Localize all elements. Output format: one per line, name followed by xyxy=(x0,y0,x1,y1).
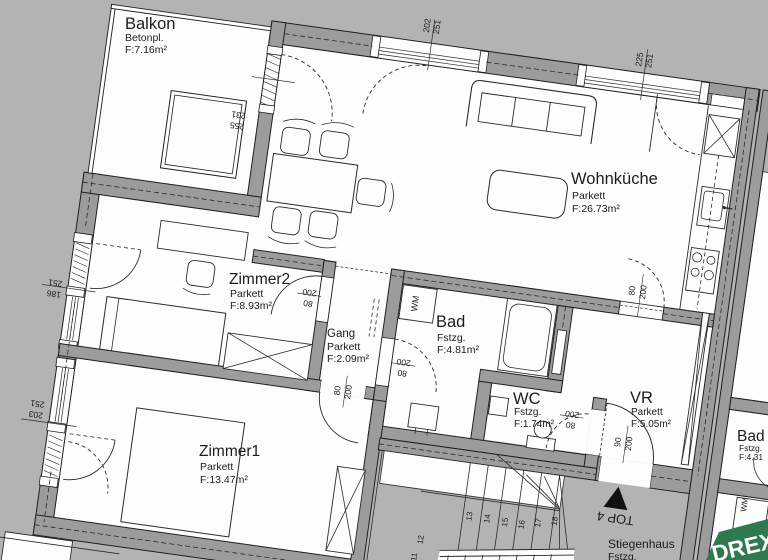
svg-text:186: 186 xyxy=(46,288,62,300)
svg-text:200: 200 xyxy=(564,409,580,421)
svg-text:F:4.81m²: F:4.81m² xyxy=(437,344,480,356)
svg-text:200: 200 xyxy=(637,284,649,300)
svg-text:Parkett: Parkett xyxy=(327,341,360,353)
svg-text:16: 16 xyxy=(517,519,527,530)
svg-text:251: 251 xyxy=(29,398,45,410)
svg-text:Bad: Bad xyxy=(436,313,465,331)
svg-text:12: 12 xyxy=(416,534,426,545)
svg-text:13: 13 xyxy=(464,511,474,522)
svg-text:VR: VR xyxy=(630,389,653,407)
svg-text:F:2.09m²: F:2.09m² xyxy=(327,353,370,365)
svg-text:90: 90 xyxy=(612,436,623,447)
svg-text:255: 255 xyxy=(229,120,245,132)
svg-text:F:8.93m²: F:8.93m² xyxy=(230,300,273,312)
svg-text:200: 200 xyxy=(342,384,354,400)
svg-text:Zimmer1: Zimmer1 xyxy=(199,443,260,460)
svg-text:80: 80 xyxy=(397,368,408,379)
svg-text:Parkett: Parkett xyxy=(572,190,605,202)
svg-text:80: 80 xyxy=(626,285,637,296)
svg-text:200: 200 xyxy=(396,357,412,369)
svg-text:Parkett: Parkett xyxy=(200,461,233,473)
svg-text:F:13.47m²: F:13.47m² xyxy=(200,474,248,486)
svg-text:251: 251 xyxy=(643,53,655,69)
svg-text:Fstzg.: Fstzg. xyxy=(514,407,541,418)
svg-text:Parkett: Parkett xyxy=(230,288,263,300)
svg-text:Wohnküche: Wohnküche xyxy=(571,170,658,188)
svg-text:Parkett: Parkett xyxy=(631,407,663,418)
svg-text:Fstzg.: Fstzg. xyxy=(437,332,466,344)
svg-text:251: 251 xyxy=(431,19,443,35)
svg-text:Betonpl.: Betonpl. xyxy=(125,32,164,44)
svg-text:15: 15 xyxy=(500,517,510,528)
svg-text:200: 200 xyxy=(623,436,635,452)
svg-text:200: 200 xyxy=(302,287,318,299)
svg-text:F:26.73m²: F:26.73m² xyxy=(572,203,620,215)
svg-text:203: 203 xyxy=(28,409,44,421)
svg-text:17: 17 xyxy=(533,517,543,528)
svg-text:F:4.31: F:4.31 xyxy=(739,452,763,462)
svg-text:Balkon: Balkon xyxy=(125,15,175,33)
svg-text:80: 80 xyxy=(332,385,343,396)
svg-text:18: 18 xyxy=(550,516,560,527)
svg-text:F:7.16m²: F:7.16m² xyxy=(125,44,168,56)
svg-text:F:1.74m²: F:1.74m² xyxy=(514,419,555,430)
svg-text:80: 80 xyxy=(302,298,313,309)
svg-text:F:5.05m²: F:5.05m² xyxy=(631,419,672,430)
svg-text:Fstzg.: Fstzg. xyxy=(608,551,637,560)
svg-text:Zimmer2: Zimmer2 xyxy=(229,271,290,288)
svg-text:Gang: Gang xyxy=(327,328,355,340)
svg-text:Stiegenhaus: Stiegenhaus xyxy=(608,537,675,551)
svg-text:251: 251 xyxy=(47,277,63,289)
svg-text:80: 80 xyxy=(565,420,576,431)
svg-text:14: 14 xyxy=(482,513,492,524)
svg-text:WC: WC xyxy=(513,390,541,408)
svg-text:231: 231 xyxy=(231,109,247,121)
